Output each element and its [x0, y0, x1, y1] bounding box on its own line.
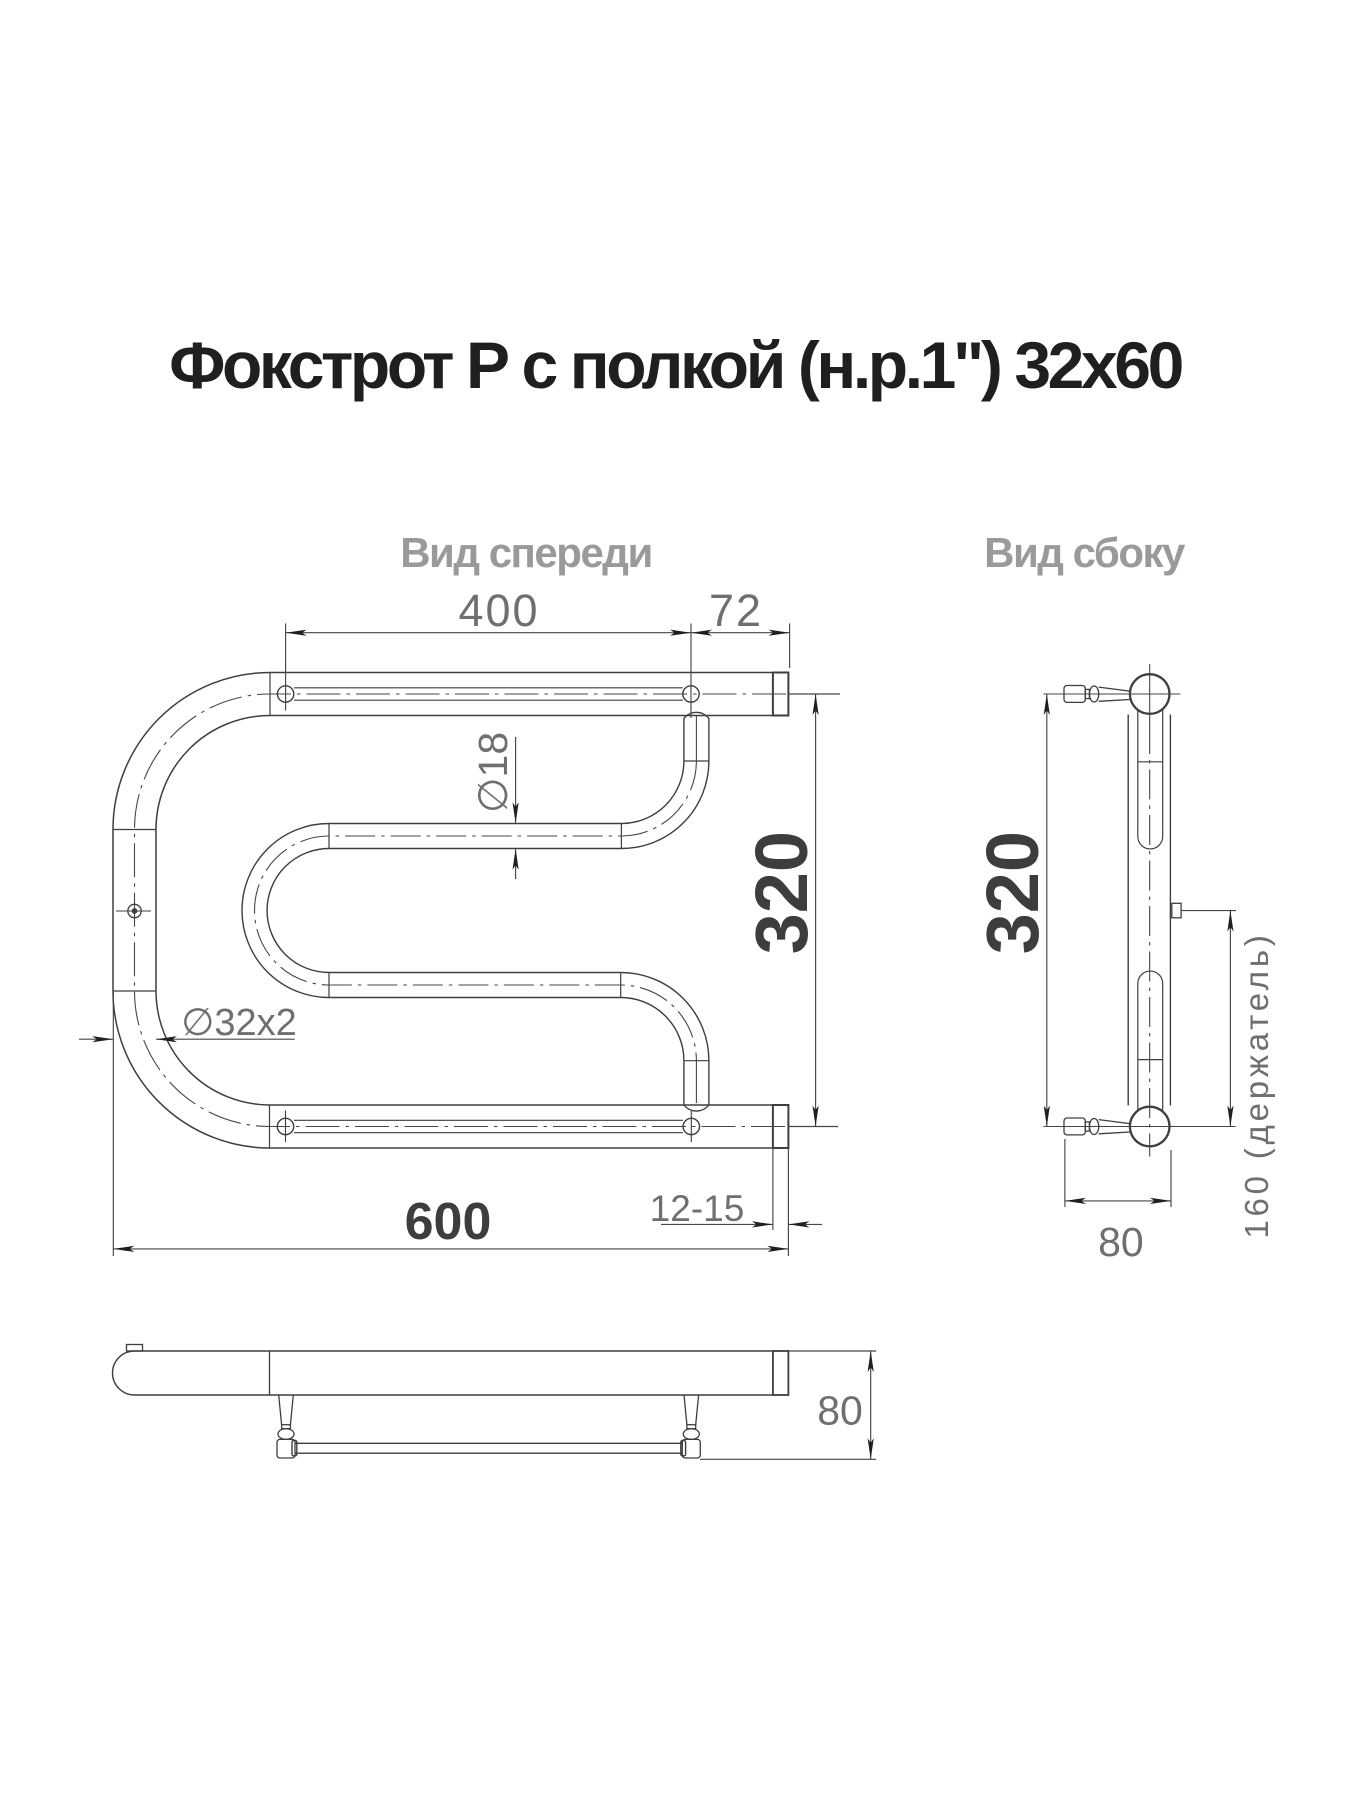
svg-text:600: 600 — [405, 1193, 492, 1251]
svg-text:Фокстрот Р с полкой (н.р.1") 3: Фокстрот Р с полкой (н.р.1") 32х60 — [169, 328, 1182, 402]
svg-text:Вид спереди: Вид спереди — [400, 529, 652, 576]
svg-text:320: 320 — [740, 831, 823, 954]
svg-text:80: 80 — [1098, 1219, 1144, 1265]
svg-text:320: 320 — [971, 831, 1054, 954]
svg-text:400: 400 — [458, 585, 539, 636]
svg-text:Вид сбоку: Вид сбоку — [984, 529, 1186, 576]
svg-text:72: 72 — [709, 585, 763, 636]
svg-text:12-15: 12-15 — [650, 1188, 745, 1229]
svg-text:∅32х2: ∅32х2 — [181, 1002, 297, 1044]
svg-text:80: 80 — [817, 1388, 863, 1434]
svg-text:∅18: ∅18 — [470, 732, 516, 813]
svg-text:160 (держатель): 160 (держатель) — [1238, 931, 1275, 1238]
